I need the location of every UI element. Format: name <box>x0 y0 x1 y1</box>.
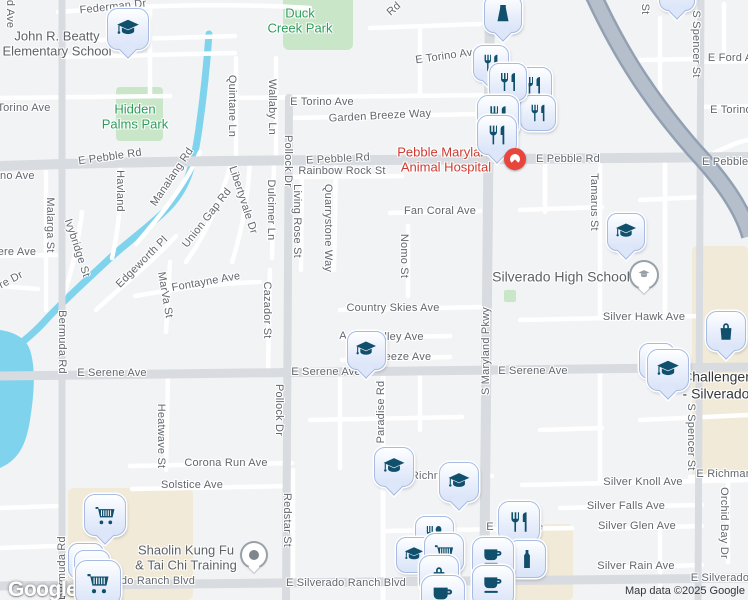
poi-label-line: Animal Hospital <box>397 160 495 175</box>
poi-label-line: Silverado High School <box>492 269 630 286</box>
street-label: St <box>639 4 651 15</box>
street-label: Redstar St <box>281 493 293 547</box>
restaurant-icon <box>496 70 520 94</box>
poi-label-line: Creek Park <box>267 21 332 36</box>
poi-label[interactable]: DuckCreek Park <box>267 6 332 37</box>
creek <box>2 34 209 356</box>
poi-label-line: - Silverado <box>682 385 748 402</box>
school-icon <box>614 220 638 244</box>
street-label: Tamarus St <box>588 173 600 231</box>
school-icon <box>382 455 407 480</box>
street-label: Nomo St <box>398 234 410 278</box>
street-label: E Pebble Rd <box>702 156 748 168</box>
street-label: d Ave <box>4 0 16 28</box>
restaurant-icon <box>527 102 549 124</box>
red-pin[interactable] <box>504 148 526 170</box>
street-label: Quintane Ln <box>226 75 238 137</box>
cafe-pin[interactable] <box>421 575 465 600</box>
school-icon <box>635 266 653 284</box>
school-pin[interactable] <box>347 331 386 370</box>
street-label: Living Rose St <box>291 184 303 258</box>
poi-label-line: Hidden <box>102 102 168 117</box>
street-label: E Silverado Ranch <box>691 572 748 584</box>
cart-pin[interactable] <box>75 560 121 600</box>
bag-pin[interactable] <box>706 311 746 351</box>
poi-label-line: & Tai Chi Training <box>135 558 237 573</box>
street-label: Pollock Dr <box>282 135 294 187</box>
street-label: S Spencer St <box>690 10 702 77</box>
street-label: E Ford Ave <box>708 52 748 64</box>
street-label: Silver Rain Ave <box>597 560 674 572</box>
google-logo: Google <box>8 578 77 600</box>
map-data-attribution: Map data ©2025 Google <box>625 585 745 597</box>
street-label: Rainbow Rock St <box>298 165 385 177</box>
school-pin[interactable] <box>647 349 689 391</box>
poi-label[interactable]: Shaolin Kung Fu& Tai Chi Training <box>135 543 237 574</box>
street-label: Silver Falls Ave <box>587 500 665 512</box>
cafe-icon <box>480 573 506 599</box>
street-label: Bermuda Rd <box>56 310 68 374</box>
street-label: Silver Hawk Ave <box>603 311 685 323</box>
street-label: E Silverado Ranch Blvd <box>286 577 406 589</box>
restaurant-pin[interactable] <box>520 95 556 131</box>
cafe-icon <box>429 583 457 600</box>
restaurant-icon <box>485 123 510 148</box>
pin-tail <box>509 159 520 170</box>
cart-icon <box>84 569 113 598</box>
street-label: E Torino Ave <box>290 96 354 108</box>
street-label: Torino Ave <box>0 102 51 114</box>
street-label: Silver Knoll Ave <box>603 476 682 488</box>
street-label: S Spencer St <box>685 403 697 470</box>
poi-label-line: Palms Park <box>102 117 168 132</box>
street-label: Fan Coral Ave <box>404 205 476 217</box>
poi-label[interactable]: Silverado High School <box>492 269 630 286</box>
school-icon <box>655 357 681 383</box>
poi-label[interactable]: John R. BeattyElementary School <box>2 29 111 60</box>
poi-label-line: John R. Beatty <box>2 29 111 44</box>
school-icon <box>447 470 472 495</box>
cafe-pin[interactable] <box>472 565 514 600</box>
school-pin[interactable] <box>374 447 414 487</box>
cart-pin[interactable] <box>84 494 126 536</box>
street-label: Paradise Rd <box>375 381 387 444</box>
street-label: Solstice Ave <box>161 479 223 491</box>
poi-label-line: Elementary School <box>2 44 111 59</box>
street-label: Pollock Dr <box>273 384 285 436</box>
bag-icon <box>714 319 739 344</box>
school-pin[interactable] <box>107 8 149 50</box>
street-label: reeze Ave <box>381 351 432 363</box>
street-label: A <box>339 330 347 342</box>
school-circle[interactable] <box>631 262 657 288</box>
school-pin[interactable] <box>439 462 479 502</box>
street-label: Dulcimer Ln <box>265 180 277 241</box>
street-label: E Torino Ave <box>710 104 748 116</box>
poi-label-line: Duck <box>267 6 332 21</box>
street-label: E Pebble Rd <box>536 153 600 165</box>
poi-label-line: Shaolin Kung Fu <box>135 543 237 558</box>
street-label: S Maryland Pkwy <box>480 307 492 395</box>
dot-circle[interactable] <box>242 543 266 567</box>
street-label: Orchid Bay Dr <box>718 487 730 559</box>
cart-icon <box>92 502 118 528</box>
poi-pin-partial[interactable] <box>659 0 695 11</box>
street-label: Quarrystone Way <box>322 184 334 272</box>
street-label: Malarga St <box>44 197 56 252</box>
road-s-spencer-st <box>698 0 701 600</box>
street-label: do Ranch Blvd <box>121 575 195 587</box>
street-label: Wallaby Ln <box>266 79 278 135</box>
dot-icon <box>249 550 259 560</box>
street-label: ino Ave <box>0 170 35 182</box>
map-canvas[interactable]: Federman Drd AveTorino Aveino AveE Torin… <box>0 0 748 600</box>
poi-label[interactable]: Challenger- Silverado <box>682 368 748 401</box>
street-label: Silver Glen Ave <box>598 520 676 532</box>
school-icon <box>115 16 141 42</box>
street-label: Havland <box>114 170 126 212</box>
clothing-pin[interactable] <box>484 0 522 33</box>
street-label: ere Ave <box>0 246 36 258</box>
street-label: E Richmar Ave <box>696 468 748 480</box>
street-label: Country Skies Ave <box>346 302 439 314</box>
street-label: Heatwave St <box>155 404 167 469</box>
street-label: Corona Run Ave <box>184 457 267 469</box>
street-label: E <box>486 521 494 533</box>
restaurant-icon <box>506 509 532 535</box>
street-label: E Serene Ave <box>77 367 146 379</box>
street-label: lley Ave <box>384 331 423 343</box>
school-pin[interactable] <box>607 213 645 251</box>
school-icon <box>354 338 378 362</box>
street-label: Cazador St <box>261 281 273 338</box>
street-label: E Serene Ave <box>498 365 567 377</box>
poi-label-line: Challenger <box>682 368 748 385</box>
bottle-icon <box>515 547 539 571</box>
clothing-icon <box>491 2 515 26</box>
poi-label[interactable]: HiddenPalms Park <box>102 102 168 133</box>
